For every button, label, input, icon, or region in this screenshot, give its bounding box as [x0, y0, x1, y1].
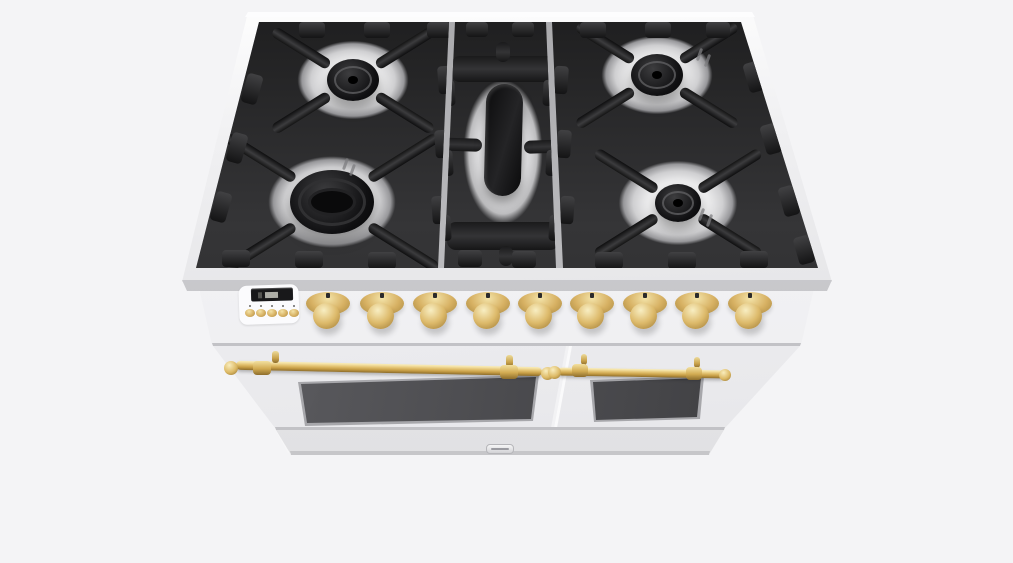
grate-tab	[458, 250, 482, 267]
knob-indicator-mark	[643, 293, 647, 298]
left-front-burner-cap	[290, 170, 374, 234]
digital-clock-display	[251, 287, 293, 301]
right-handle-finial-left	[548, 366, 561, 379]
knob-indicator-mark	[380, 293, 384, 298]
grate-tab	[295, 251, 323, 268]
knob-indicator-mark	[748, 293, 752, 298]
grate-tab	[368, 252, 396, 269]
knob-indicator-mark	[326, 293, 330, 298]
grate-tab	[222, 250, 250, 267]
burner-knob-3	[413, 292, 461, 338]
burner-knob-7	[623, 292, 671, 338]
grate-tab	[512, 22, 534, 37]
left-rear-burner-hub	[348, 76, 358, 84]
grate-tab	[668, 252, 696, 269]
panel-button-5	[289, 309, 299, 317]
panel-button-2	[256, 309, 266, 317]
button-label-mark	[260, 305, 262, 307]
grate-tab	[427, 22, 451, 38]
left-front-burner-ring-inner	[308, 188, 356, 216]
knob-indicator-mark	[486, 293, 490, 298]
grate-tab	[299, 22, 325, 38]
button-label-mark	[249, 305, 251, 307]
knob-indicator-mark	[695, 293, 699, 298]
center-grate-neck-bottom	[499, 246, 513, 266]
right-handle-collar-left	[572, 364, 588, 377]
burner-knob-9	[728, 292, 776, 338]
grate-tab	[645, 22, 671, 38]
panel-button-1	[245, 309, 255, 317]
grate-tab	[364, 22, 390, 38]
right-front-burner-hub	[673, 199, 683, 207]
burner-knob-1	[306, 292, 354, 338]
button-label-mark	[282, 305, 284, 307]
burner-knob-2	[360, 292, 408, 338]
range-product-render: 3D product render of a white freestandin…	[0, 0, 1013, 563]
grate-tab	[740, 251, 768, 268]
grate-tab	[706, 22, 730, 38]
right-rear-burner-cap	[631, 54, 683, 96]
grate-tab	[512, 251, 536, 268]
grate-tab	[580, 22, 606, 38]
right-front-burner-cap	[655, 184, 701, 222]
right-handle-finial-right	[719, 369, 731, 381]
button-label-mark	[271, 305, 273, 307]
burner-knob-5	[518, 292, 566, 338]
griddle-plate	[484, 84, 524, 197]
left-handle-post-left	[272, 351, 279, 363]
panel-button-4	[278, 309, 288, 317]
grate-tab	[466, 22, 488, 37]
left-handle-collar-right	[500, 365, 518, 379]
burner-knob-4	[466, 292, 514, 338]
burner-knob-6	[570, 292, 618, 338]
grate-tab	[595, 252, 623, 269]
left-handle-collar-left	[253, 361, 271, 375]
grate-tab	[556, 130, 572, 159]
knob-indicator-mark	[590, 293, 594, 298]
grate-tab	[559, 196, 575, 225]
center-grate-neck-top	[496, 42, 510, 62]
panel-button-3	[267, 309, 277, 317]
left-rear-burner-cap	[327, 59, 379, 101]
burner-knob-8	[675, 292, 723, 338]
right-handle-collar-right	[686, 367, 702, 380]
grate-tab	[553, 66, 569, 95]
knob-indicator-mark	[538, 293, 542, 298]
button-label-mark	[293, 305, 295, 307]
drawer-latch	[486, 444, 514, 454]
right-rear-burner-hub	[652, 71, 662, 79]
left-handle-finial-left	[224, 361, 238, 375]
knob-indicator-mark	[433, 293, 437, 298]
